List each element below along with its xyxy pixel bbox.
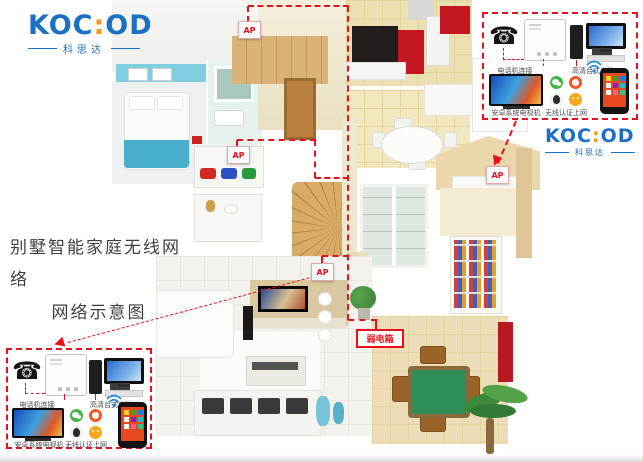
floor-speaker <box>243 306 253 340</box>
logo-rule <box>545 152 569 153</box>
sideboard-vase <box>206 200 215 212</box>
device-callout-top-right: ☎ 电话机连接 高清台式电脑 安卓系统电视机 无线认证上网 <box>482 12 638 120</box>
bookshelf-books <box>454 240 496 308</box>
wifi-auth-label: 无线认证上网 <box>64 440 108 450</box>
android-tv-label: 安卓系统电视机 <box>484 108 548 118</box>
connector-line <box>95 394 96 400</box>
bed-blanket <box>124 140 189 168</box>
sofa-cushion <box>230 398 252 414</box>
pc-monitor-icon <box>586 23 626 49</box>
weak-current-box-label: 弱电箱 <box>366 332 393 345</box>
pc-tower <box>89 360 102 394</box>
qq-icon <box>70 426 83 439</box>
android-tv-label: 安卓系统电视机 <box>8 440 70 450</box>
branch-line-bedroom <box>314 140 316 178</box>
picture-frame <box>128 68 148 81</box>
red-accent-wall <box>498 322 513 382</box>
telephone-icon: ☎ <box>489 24 519 48</box>
wireless-ap-device <box>524 19 566 61</box>
coffee-table <box>246 356 306 386</box>
palm-frond <box>470 404 516 418</box>
trunk-line <box>348 319 377 321</box>
pc-tower <box>570 25 583 59</box>
dining-chair <box>444 132 457 148</box>
bathroom-sink <box>214 110 244 126</box>
spiral-stairs <box>292 182 346 266</box>
tv-cabinet <box>252 318 346 328</box>
logo-wordmark: KOC:OD <box>545 127 635 146</box>
logo-right: KOC:OD 科思达 <box>545 127 635 158</box>
center-plant <box>350 286 376 310</box>
trunk-line <box>248 5 349 7</box>
logo-subline: 科思达 <box>545 147 635 158</box>
wangwang-icon <box>569 93 582 106</box>
hall-door <box>284 78 316 140</box>
wechat-icon <box>70 409 83 422</box>
branch-line-bedroom <box>237 139 316 141</box>
logo-subline: 科思达 <box>28 41 140 56</box>
qq-icon <box>550 93 563 106</box>
smartphone-icon <box>600 68 629 114</box>
wireless-ap-device <box>45 354 87 396</box>
ap-marker-bay-room: AP <box>486 166 509 184</box>
sideboard <box>194 194 262 242</box>
wall-deco-circle <box>318 292 332 306</box>
ap-marker-living-room: AP <box>311 263 334 281</box>
logo-text: OD <box>601 125 635 147</box>
title-line1: 别墅智能家庭无线网络 <box>10 232 188 297</box>
picture-frame <box>152 68 172 81</box>
ap-label: AP <box>316 268 328 277</box>
right-wall-strip <box>516 148 532 258</box>
ap-label: AP <box>232 151 244 160</box>
ap-label: AP <box>243 26 255 35</box>
nightstand-decor <box>192 136 202 144</box>
logo-sub-text: 科思达 <box>569 147 611 158</box>
wangwang-icon <box>89 426 102 439</box>
logo-text: KOC <box>545 125 592 147</box>
wifi-auth-label: 无线认证上网 <box>544 108 588 118</box>
page-edge-shadow <box>0 455 643 462</box>
poster-canvas: KOC:OD 科思达 KOC:OD 科思达 别墅智能家庭无线网络 网络示意图 <box>0 0 643 462</box>
sofa-cushion <box>202 398 224 414</box>
mahjong-table <box>408 366 470 418</box>
connector-line <box>543 59 544 66</box>
diagram-title: 别墅智能家庭无线网络 网络示意图 <box>10 232 188 329</box>
title-line2: 网络示意图 <box>10 297 188 329</box>
logo-rule <box>111 48 140 49</box>
branch-line-bedroom <box>315 177 349 179</box>
blue-vase <box>333 402 344 424</box>
wall-deco-circle <box>318 328 332 342</box>
living-tv-screen <box>261 289 305 309</box>
kitchen-counter <box>346 62 406 80</box>
connector-line <box>64 394 65 400</box>
weak-current-box: 弱电箱 <box>356 329 404 348</box>
toy-car-green <box>242 168 256 179</box>
logo-top-left: KOC:OD 科思达 <box>28 12 140 56</box>
sideboard-bowl <box>224 204 238 214</box>
ap-label: AP <box>491 171 503 180</box>
telephone-icon: ☎ <box>12 359 42 383</box>
logo-wordmark: KOC:OD <box>28 12 140 39</box>
coffee-table-top <box>252 362 298 370</box>
logo-text: OD <box>105 10 152 41</box>
toy-car-red <box>200 168 216 179</box>
android-tv-icon <box>12 408 64 438</box>
logo-text: KOC <box>28 10 93 41</box>
hall-wood-floor <box>232 36 328 84</box>
wall-deco-circle <box>318 310 332 324</box>
video-app-icon <box>569 76 582 89</box>
logo-dots-icon: : <box>93 10 105 41</box>
wechat-icon <box>550 76 563 89</box>
divider-pillar-upper <box>342 118 357 258</box>
sofa-cushion <box>286 398 308 414</box>
trunk-line <box>347 6 349 320</box>
pillow <box>129 96 155 110</box>
video-app-icon <box>89 409 102 422</box>
ap-marker-kitchen-hall: AP <box>238 21 261 39</box>
dining-table <box>381 126 443 164</box>
logo-sub-text: 科思达 <box>57 41 111 56</box>
branch-line-living <box>322 255 349 257</box>
device-callout-bottom-left: ☎ 电话机连接 高清台式电脑 安卓系统电视机 无线认证上网 <box>6 348 152 449</box>
dining-wall-cabinet <box>424 84 474 116</box>
android-tv-icon <box>489 74 543 106</box>
connector-line <box>576 60 577 66</box>
kitchen-red-upper <box>440 6 470 34</box>
connector-line <box>503 59 524 60</box>
trunk-line <box>247 6 249 22</box>
toy-car-blue <box>221 168 237 179</box>
mahjong-chair <box>420 346 446 364</box>
sofa-cushion <box>258 398 280 414</box>
palm-trunk <box>486 418 494 454</box>
connector-line <box>25 393 45 394</box>
ap-marker-bedroom: AP <box>227 146 250 164</box>
blue-vase <box>316 396 330 426</box>
pc-monitor-icon <box>104 358 144 384</box>
logo-rule <box>28 48 57 49</box>
logo-rule <box>611 152 635 153</box>
smartphone-icon <box>118 402 147 448</box>
logo-dots-icon: : <box>592 125 601 147</box>
pillow <box>157 96 183 110</box>
